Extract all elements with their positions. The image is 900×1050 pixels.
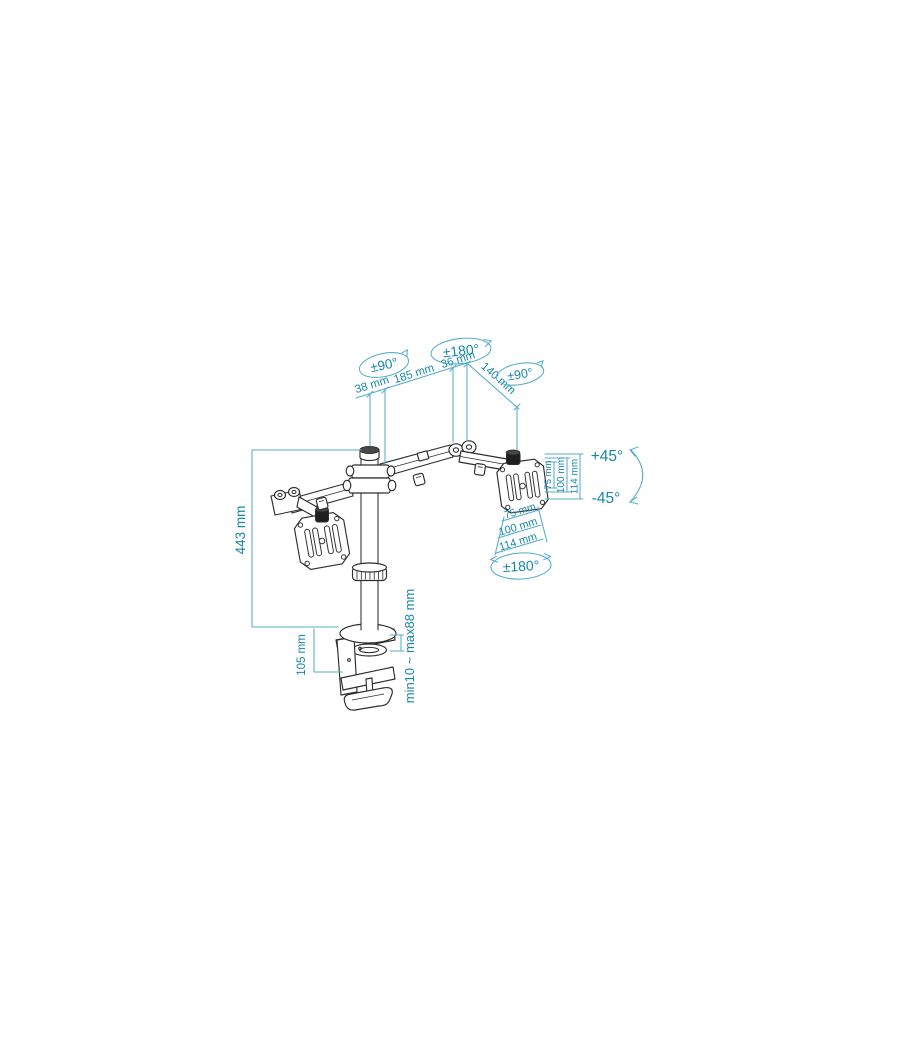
vesa-75-label: 75 mm bbox=[543, 460, 554, 489]
clamp-jaw-plate bbox=[352, 644, 387, 656]
pole-height-label: 443 mm bbox=[233, 506, 248, 555]
dimension-annotations: 38 mm 185 mm 36 mm 140 mm ±90° ±180° ±90… bbox=[233, 335, 643, 703]
lower-pole-joint bbox=[349, 478, 390, 493]
clamp-height-label: 105 mm bbox=[296, 634, 308, 676]
clamp-height-dimension: 105 mm bbox=[296, 629, 342, 676]
tilt-annotation: +45° -45° bbox=[591, 447, 643, 507]
cable-clip bbox=[474, 463, 485, 475]
cable-clip bbox=[316, 497, 329, 510]
technical-drawing-canvas: 38 mm 185 mm 36 mm 140 mm ±90° ±180° ±90… bbox=[0, 0, 900, 1050]
tilt-up-label: +45° bbox=[591, 448, 624, 465]
arrowhead-icon bbox=[630, 447, 638, 456]
vesa-side-dimensions: 75 mm 100 mm 114 mm bbox=[543, 454, 583, 499]
vesa-100-label: 100 mm bbox=[556, 457, 567, 493]
svg-text:±180°: ±180° bbox=[502, 557, 539, 575]
desk-thickness-label: min10 ~ max88 mm bbox=[402, 589, 417, 704]
tilt-down-label: -45° bbox=[592, 490, 621, 507]
svg-text:±90°: ±90° bbox=[506, 365, 534, 383]
cable-clip bbox=[413, 473, 426, 486]
tilt-arc bbox=[630, 450, 643, 502]
monitor-arm-diagram: 38 mm 185 mm 36 mm 140 mm ±90° ±180° ±90… bbox=[0, 0, 900, 1050]
vesa-114-label: 114 mm bbox=[570, 459, 581, 494]
left-arm bbox=[271, 482, 353, 517]
dim-seg-b: 185 mm bbox=[392, 362, 435, 386]
upper-pole-joint bbox=[352, 465, 389, 478]
arm-clip bbox=[417, 451, 429, 461]
svg-text:±90°: ±90° bbox=[369, 355, 399, 375]
right-arm bbox=[380, 441, 507, 477]
vesa-rotation-label: ±180° bbox=[490, 551, 551, 580]
desk-thickness-dimension: min10 ~ max88 mm bbox=[390, 589, 417, 704]
pole-joints bbox=[343, 465, 396, 493]
